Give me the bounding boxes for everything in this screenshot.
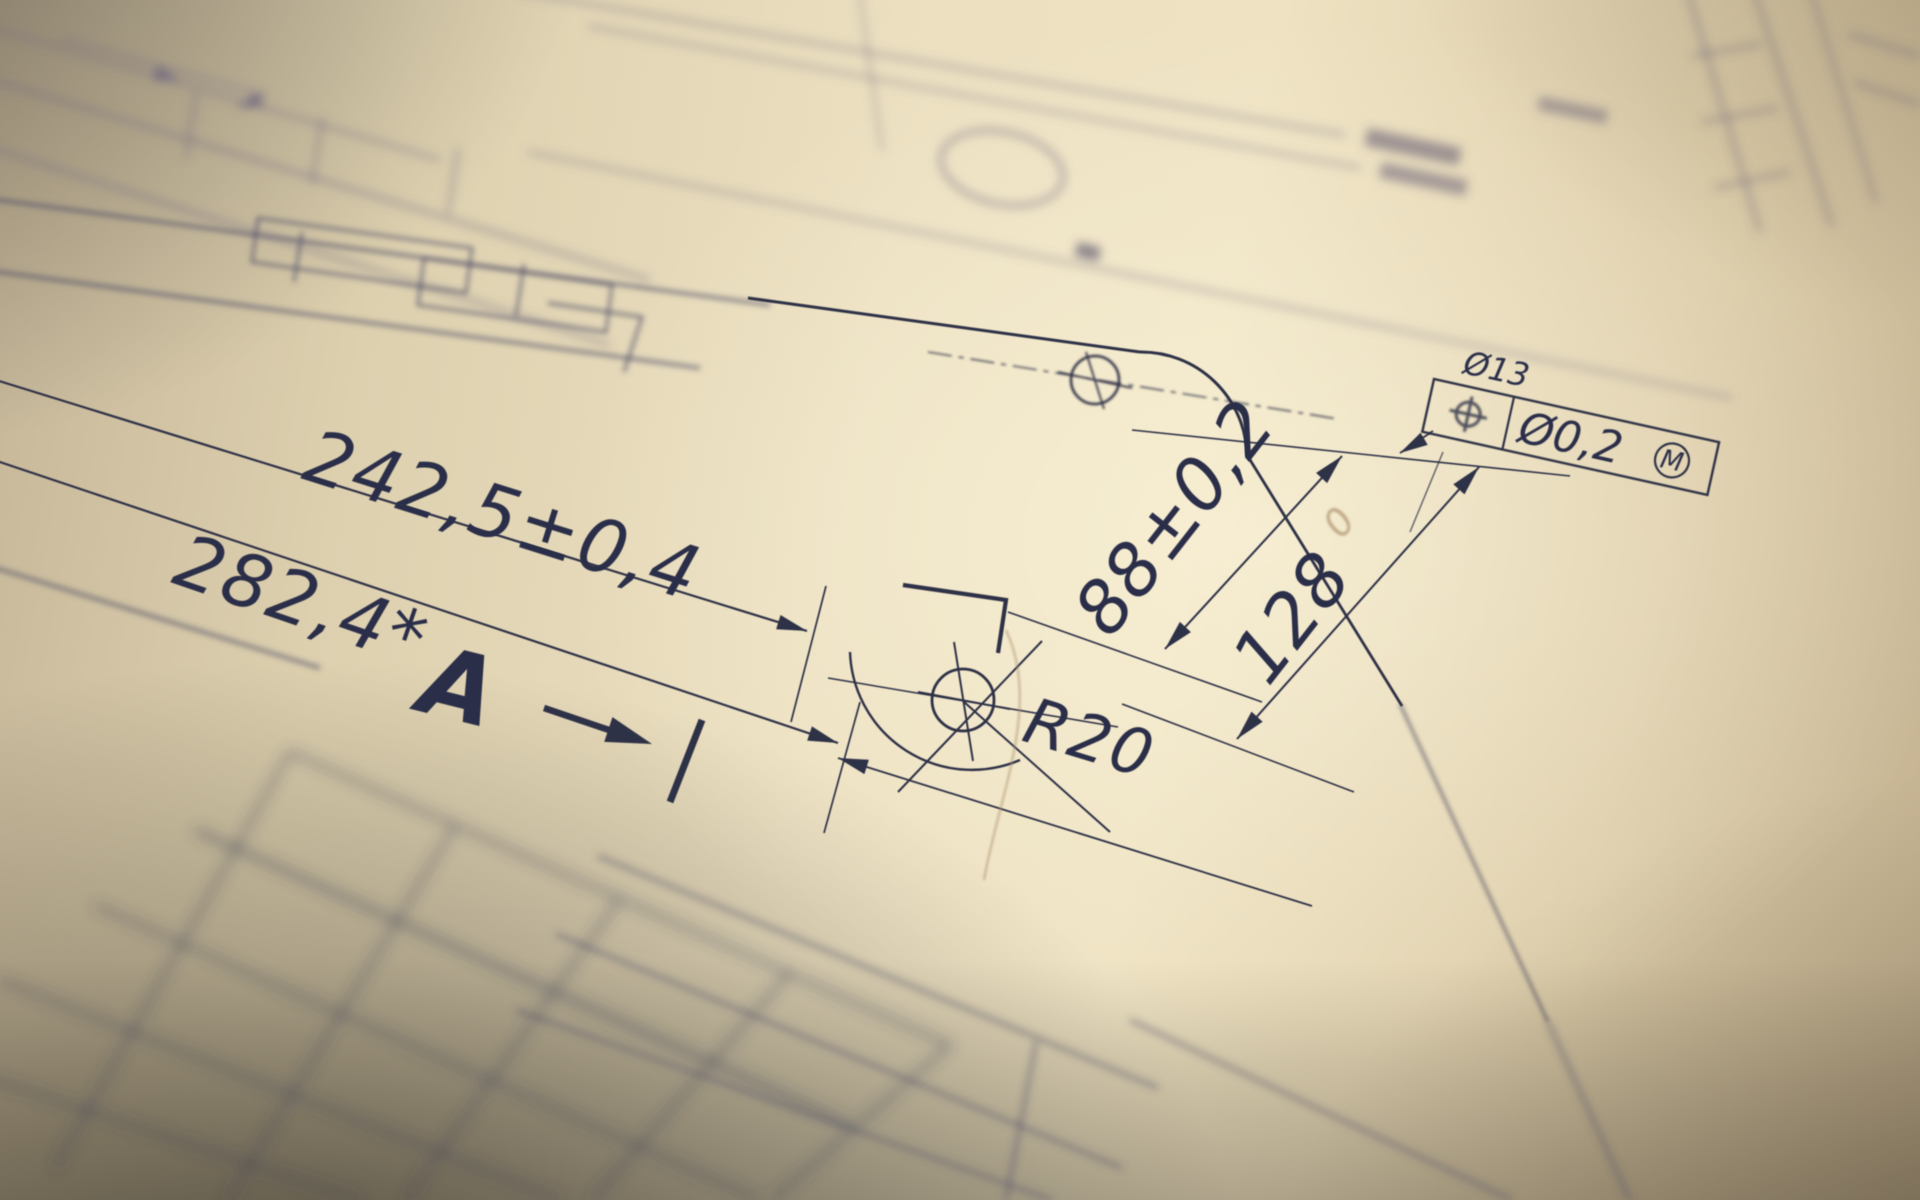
drawing-line [1748,0,1832,226]
illegible-blurred-text [1379,162,1468,196]
step-notch [252,218,472,293]
drawing-line [62,38,268,96]
drawing-line [1130,1020,1512,1200]
illegible-blurred-text [1364,128,1462,166]
drawing-line [1548,1022,1630,1200]
grid-line [95,905,760,1200]
frame-divider [1502,397,1514,450]
bottom-left-blurred-grid [0,752,950,1200]
grid-line [406,898,620,1200]
extension-line-bottom [1122,704,1354,792]
extension-tick [186,92,196,158]
top-right-blurred-table [1364,0,1920,232]
section-arrowhead [604,717,656,756]
dimension-labels: 242,5±0,4 282,4* 88±0,2 128 R20 A 0 [164,384,1368,794]
bottom-blurred-lines [516,856,1630,1200]
extension-line [791,586,826,722]
section-view-indicator [544,708,702,802]
grid-line [55,752,290,1168]
blurred-mark [1075,242,1102,261]
drawing-line [1682,0,1760,232]
step-notch [548,303,642,372]
frame-leader [1396,431,1443,532]
drawing-line [0,70,650,280]
drawing-line [1714,172,1790,188]
top-left-blurred-view [0,18,650,345]
pencil-curve [984,630,1020,880]
dimension-text-r20: R20 [1015,685,1163,794]
extension-tick [312,118,322,184]
hole-center-mark-upper [928,352,1338,419]
grid-line [195,830,850,1125]
part-edge-defocus [1400,704,1548,1022]
leader-line [838,758,1312,906]
drawing-line [598,856,1158,1088]
position-tolerance-icon [1446,393,1491,436]
drawing-line [588,26,1360,168]
blurred-arrowhead [234,93,263,115]
extension-tick [448,148,458,214]
section-plane-tick [670,720,702,802]
drawing-line [1808,0,1876,202]
arrowhead [807,726,840,750]
grid-line [0,1062,360,1200]
section-arrow-shaft [544,708,612,731]
part-edge [1400,704,1548,1022]
tolerance-value-text: Ø0,2 [1512,402,1627,475]
feature-control-frame: Ø13 Ø0,2 M [1422,338,1728,495]
pencil-mark: 0 [1314,499,1364,545]
leader-line-to-frame [528,152,1732,398]
grid-line [0,980,560,1200]
leader-line [1410,452,1443,532]
arrowhead [776,615,809,638]
grid-line [772,1045,950,1200]
dimension-text-282: 282,4* [164,518,439,684]
drawing-line [1854,82,1920,104]
drawing-line [1848,34,1920,56]
illegible-blurred-text [1537,96,1608,124]
top-center-blurred-lines [520,0,1732,398]
blurred-symbol [934,120,1070,216]
drawing-line [556,934,1122,1168]
part-top-edge [748,298,1140,352]
radius-callout [836,751,1312,906]
drawing-line [520,0,1345,135]
drawing-line [1702,108,1778,122]
engineering-drawing-svg: 242,5±0,4 282,4* 88±0,2 128 R20 A 0 Ø13 … [0,0,1920,1200]
photo-of-engineering-drawing: 242,5±0,4 282,4* 88±0,2 128 R20 A 0 Ø13 … [0,0,1920,1200]
dash-dot-centerline [928,352,1338,419]
